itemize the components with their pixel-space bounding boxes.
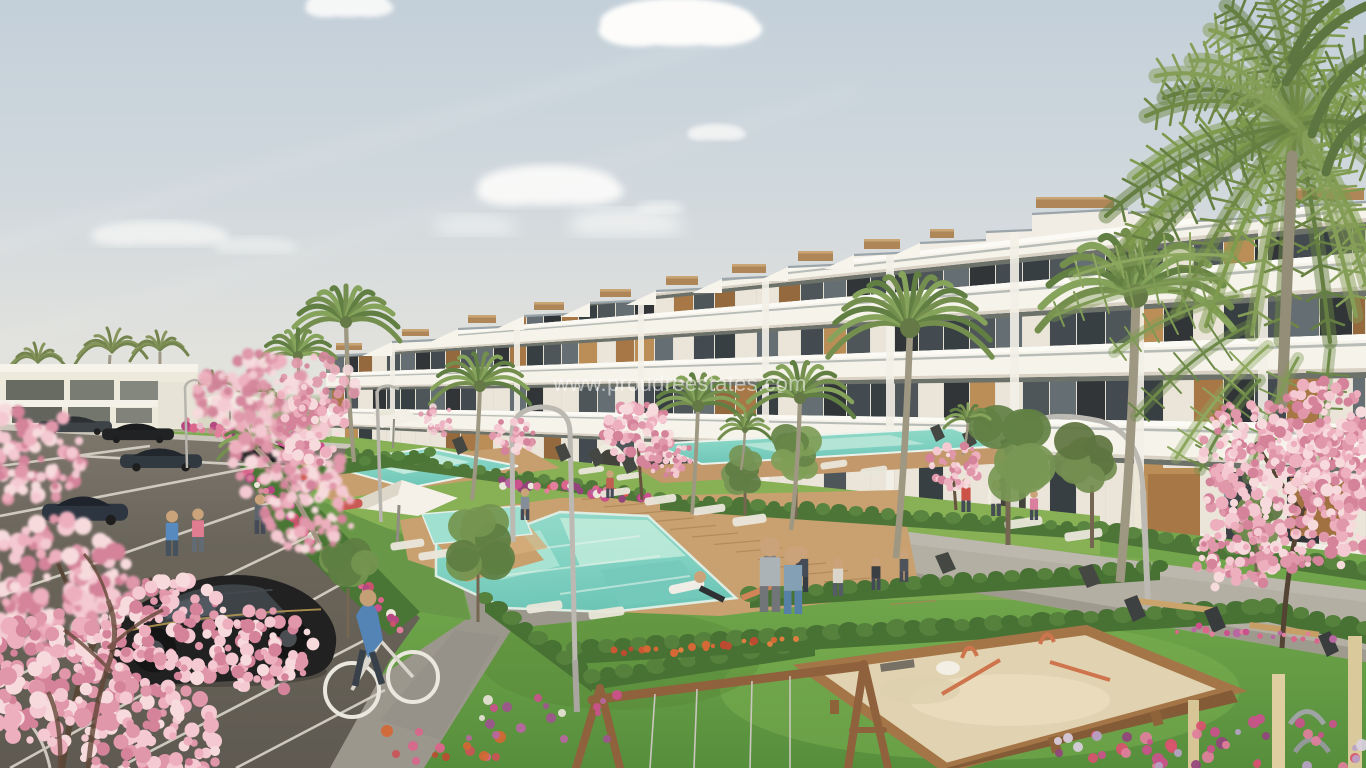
svg-text:www.proudreestates.com: www.proudreestates.com xyxy=(552,371,807,396)
